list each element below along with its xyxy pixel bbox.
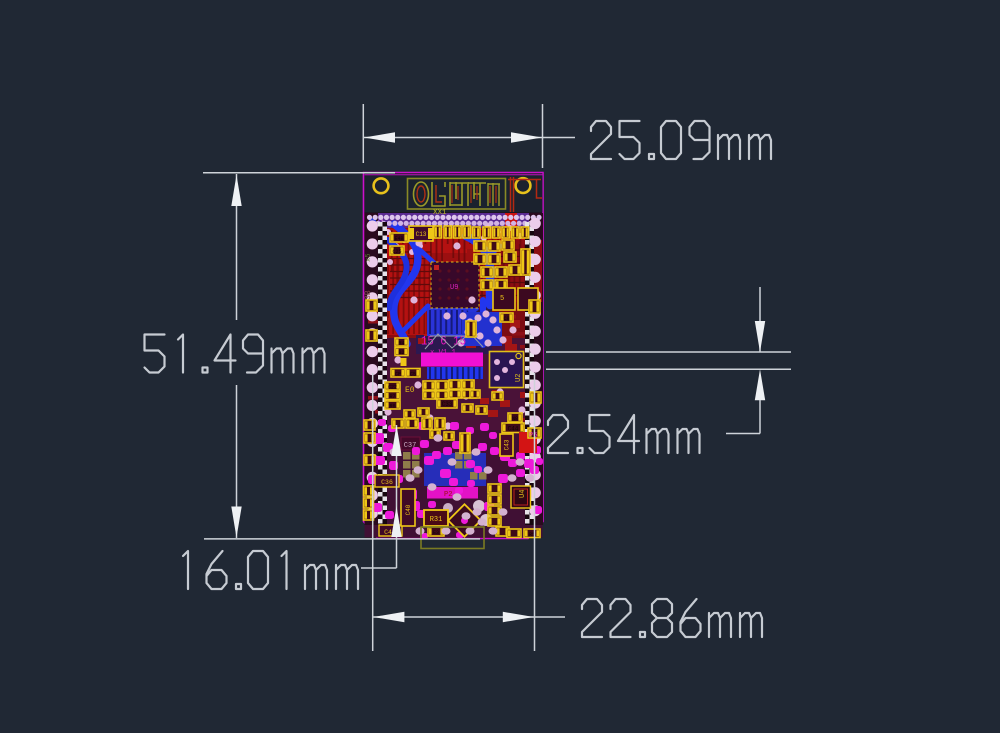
svg-text:E4B: E4B — [394, 236, 403, 242]
svg-text:R31: R31 — [430, 516, 443, 524]
svg-text:R6: R6 — [389, 404, 395, 410]
svg-text:B2: B2 — [398, 350, 404, 356]
svg-text:E3: E3 — [433, 530, 439, 536]
svg-text:C8: C8 — [503, 316, 509, 322]
svg-text:U2: U2 — [515, 374, 523, 382]
svg-text:U9: U9 — [450, 284, 458, 292]
svg-text:C5: C5 — [410, 371, 416, 377]
svg-text:3B: 3B — [364, 290, 373, 300]
svg-text:C25: C25 — [392, 249, 401, 255]
svg-text:C40: C40 — [405, 504, 412, 515]
svg-text:C22: C22 — [388, 385, 397, 391]
svg-text:C33: C33 — [442, 401, 453, 408]
svg-text:x5: x5 — [365, 254, 373, 262]
svg-text:C43: C43 — [504, 439, 511, 450]
svg-text:5: 5 — [500, 295, 504, 303]
svg-text:R7: R7 — [389, 394, 395, 400]
svg-text:C36: C36 — [381, 479, 393, 486]
svg-text:C13: C13 — [416, 231, 427, 238]
svg-text:N8: N8 — [512, 416, 518, 422]
svg-text:C44: C44 — [508, 425, 519, 432]
svg-text:R4: R4 — [398, 341, 404, 347]
svg-text:P2: P2 — [444, 491, 452, 499]
svg-text:U4: U4 — [519, 490, 527, 498]
svg-text:CP: CP — [395, 371, 401, 377]
svg-text:E0: E0 — [405, 386, 415, 395]
svg-text:P5: P5 — [529, 432, 537, 440]
